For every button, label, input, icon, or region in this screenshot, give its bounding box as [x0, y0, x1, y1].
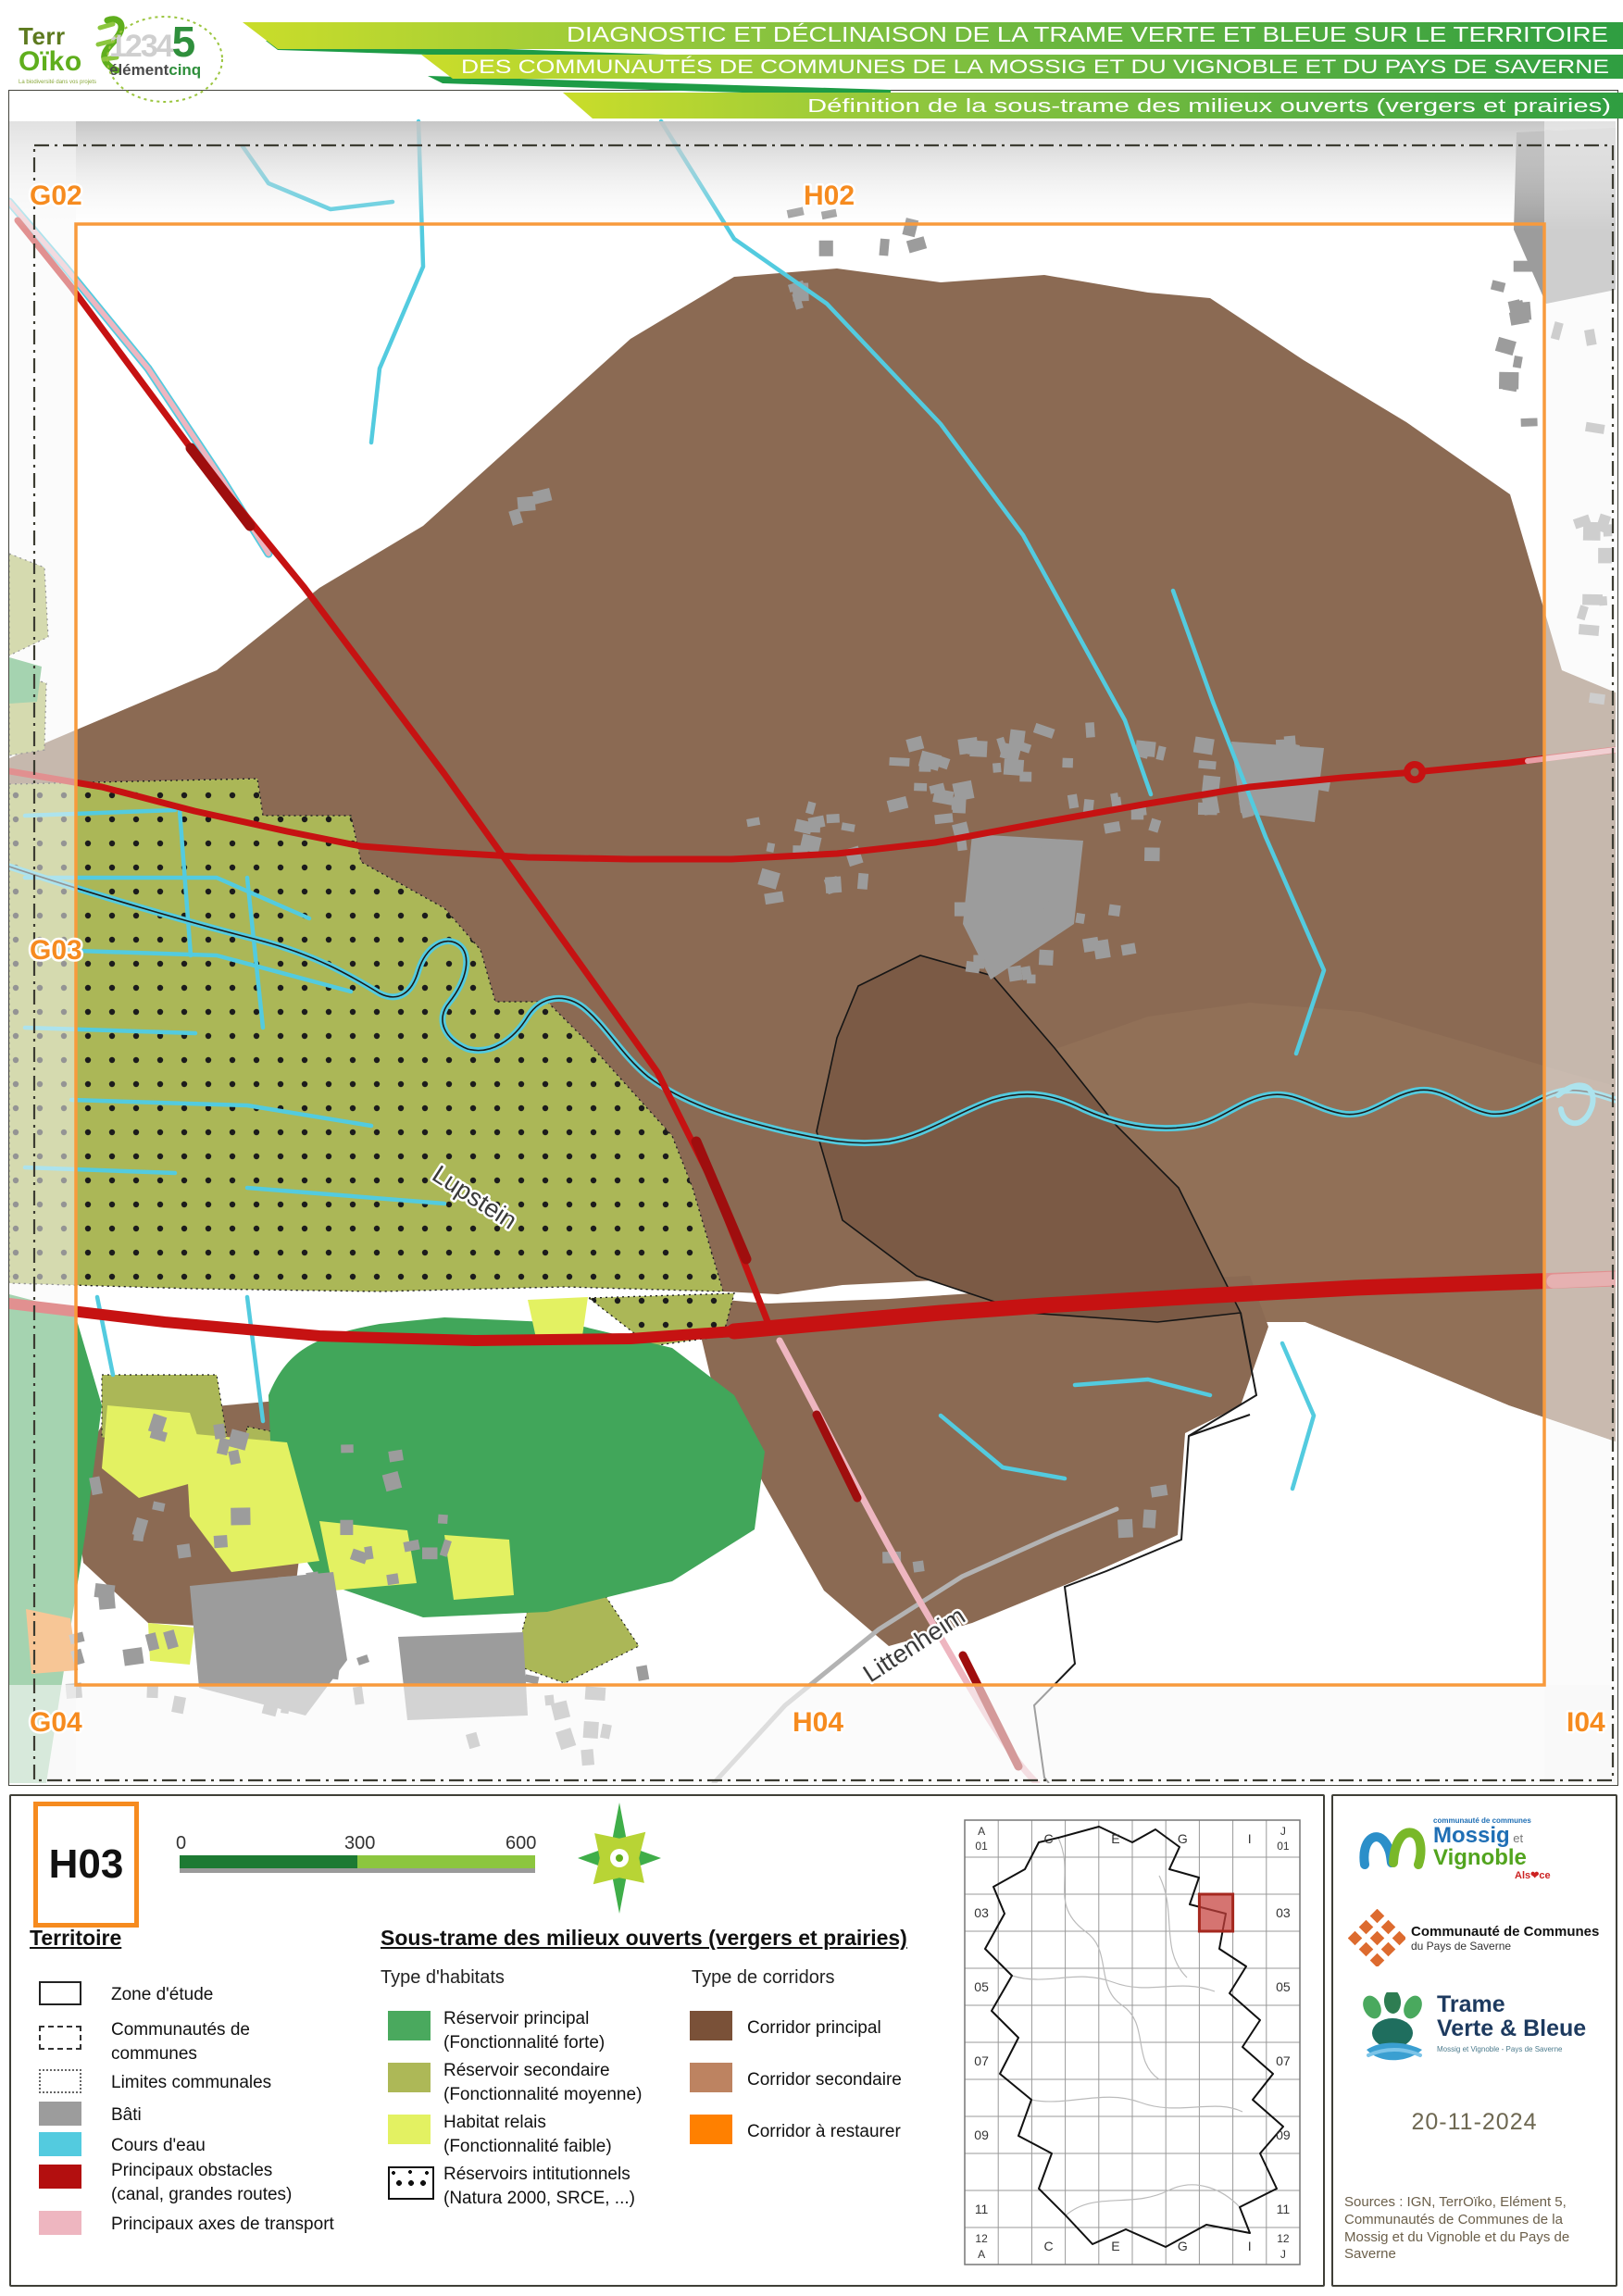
- svg-text:01: 01: [975, 1840, 988, 1853]
- tvb-line1: Trame: [1437, 1992, 1616, 2016]
- legend-panel: H03 0 300 600 m Territoire Zone d'étude …: [9, 1794, 1325, 2287]
- locator-map[interactable]: CCEEGGII03030505070709091111A01J0112A12J: [963, 1818, 1302, 2266]
- svg-text:A: A: [978, 1825, 985, 1838]
- svg-text:09: 09: [974, 2128, 989, 2142]
- saverne-line2: du Pays de Saverne: [1411, 1940, 1616, 1953]
- chip-habitat-relais: [388, 2115, 431, 2144]
- svg-text:07: 07: [1276, 2053, 1291, 2068]
- credits-panel: communauté de communes Mossig et Vignobl…: [1331, 1794, 1617, 2287]
- map-canvas[interactable]: G02 H02 G03 G04 H04 I04 Lupstein Littenh…: [8, 90, 1618, 1786]
- legend-item-communautes: Communautés de: [111, 2018, 250, 2042]
- legend-habitat-ri-2: (Natura 2000, SRCE, ...): [443, 2187, 635, 2211]
- scale-segment-1: [180, 1855, 357, 1868]
- svg-text:E: E: [1111, 1831, 1119, 1846]
- legend-item-obstacles: Principaux obstacles: [111, 2159, 292, 2183]
- swatch-bati: [39, 2102, 81, 2126]
- svg-text:11: 11: [1277, 2202, 1291, 2216]
- header: DIAGNOSTIC ET DÉCLINAISON DE LA TRAME VE…: [0, 0, 1623, 125]
- locator-grid: [965, 1820, 1300, 2265]
- legend-habitat-rs: Réservoir secondaire: [443, 2059, 642, 2083]
- chip-corridor-principal: [690, 2011, 732, 2040]
- habitats-title: Type d'habitats: [381, 1967, 505, 1989]
- compass-rose-icon: [578, 1800, 661, 1916]
- pays-saverne-logo: Communauté de Communes du Pays de Savern…: [1333, 1907, 1616, 1953]
- mossig-name1: Mossig: [1433, 1823, 1510, 1848]
- chip-corridor-restaurer: [690, 2115, 732, 2144]
- map-svg: G02 H02 G03 G04 H04 I04 Lupstein Littenh…: [9, 91, 1616, 1783]
- mossig-name2: Vignoble: [1433, 1845, 1527, 1870]
- grid-label-i04: I04: [1567, 1707, 1605, 1738]
- svg-text:C: C: [1043, 2239, 1053, 2253]
- legend-item-cours-eau: Cours d'eau: [111, 2134, 206, 2158]
- grid-label-h02: H02: [804, 181, 855, 211]
- legend-corridor-restaurer: Corridor à restaurer: [747, 2120, 901, 2144]
- svg-text:11: 11: [975, 2202, 989, 2216]
- swatch-communautes: [39, 2026, 81, 2050]
- tvb-paw-icon: [1357, 1992, 1431, 2070]
- sheet-id-box: H03: [33, 1802, 139, 1928]
- header-title-line2: DES COMMUNAUTÉS DE COMMUNES DE LA MOSSIG…: [461, 55, 1609, 78]
- svg-text:J: J: [1280, 2248, 1286, 2261]
- svg-text:12: 12: [1277, 2232, 1290, 2245]
- saverne-mosaic-icon: [1348, 1909, 1405, 1966]
- territoire-title: Territoire: [30, 1926, 121, 1951]
- corridors-title: Type de corridors: [692, 1967, 835, 1989]
- soustrame-title: Sous-trame des milieux ouverts (vergers …: [381, 1926, 907, 1951]
- svg-text:01: 01: [1277, 1840, 1290, 1853]
- sources-text: Sources : IGN, TerrOïko, Elément 5, Comm…: [1344, 2194, 1607, 2264]
- locator-department-outline: [985, 1827, 1283, 2247]
- legend-item-axes-transport: Principaux axes de transport: [111, 2213, 334, 2237]
- svg-text:12: 12: [975, 2232, 988, 2245]
- mossig-vignoble-logo: communauté de communes Mossig et Vignobl…: [1333, 1816, 1616, 1881]
- legend-corridor-principal: Corridor principal: [747, 2016, 881, 2040]
- svg-text:03: 03: [974, 1905, 989, 1920]
- legend-habitat-rp: Réservoir principal: [443, 2007, 605, 2031]
- header-title-line3: Définition de la sous-trame des milieux …: [807, 95, 1611, 117]
- legend-habitat-ri: Réservoirs intitutionnels: [443, 2163, 635, 2187]
- grid-label-g03: G03: [30, 935, 82, 966]
- locator-current-sheet[interactable]: [1199, 1894, 1232, 1931]
- svg-text:G: G: [1178, 2239, 1188, 2253]
- grid-label-h04: H04: [793, 1707, 843, 1738]
- legend-item-communautes-2: communes: [111, 2042, 250, 2066]
- map-date: 20-11-2024: [1333, 2109, 1616, 2136]
- legend-item-obstacles-2: (canal, grandes routes): [111, 2183, 292, 2207]
- scale-segment-2: [357, 1855, 535, 1868]
- swatch-zone-etude: [39, 1981, 81, 2005]
- legend-habitat-hr-2: (Fonctionnalité faible): [443, 2135, 612, 2159]
- trame-verte-bleue-logo: Trame Verte & Bleue Mossig et Vignoble -…: [1333, 1992, 1616, 2053]
- swatch-limites: [39, 2069, 81, 2093]
- scale-tick-0: 0: [176, 1833, 186, 1854]
- sheet-id: H03: [49, 1841, 124, 1888]
- svg-text:07: 07: [974, 2053, 989, 2068]
- legend-item-bati: Bâti: [111, 2103, 142, 2128]
- svg-text:03: 03: [1276, 1905, 1291, 1920]
- element5-logo: 12345 élémentcinq: [109, 17, 220, 100]
- legend-habitat-hr: Habitat relais: [443, 2111, 612, 2135]
- map-sheet-page: G02 H02 G03 G04 H04 I04 Lupstein Littenh…: [0, 0, 1623, 2296]
- scale-tick-300: 300: [344, 1833, 375, 1854]
- header-title-line1: DIAGNOSTIC ET DÉCLINAISON DE LA TRAME VE…: [567, 22, 1608, 46]
- scale-bar: 0 300 600 m: [180, 1833, 535, 1873]
- legend-item-zone-etude: Zone d'étude: [111, 1983, 213, 2007]
- svg-text:A: A: [978, 2248, 985, 2261]
- svg-text:05: 05: [974, 1979, 989, 1994]
- legend-item-limites: Limites communales: [111, 2071, 271, 2095]
- svg-text:I: I: [1248, 1831, 1252, 1846]
- grid-label-g04: G04: [30, 1707, 82, 1738]
- svg-text:I: I: [1248, 2239, 1252, 2253]
- legend-habitat-rs-2: (Fonctionnalité moyenne): [443, 2083, 642, 2107]
- tvb-line2: Verte & Bleue: [1437, 2016, 1616, 2040]
- element5-arc-icon: [100, 11, 230, 108]
- grid-label-g02: G02: [30, 181, 82, 211]
- swatch-axes-transport: [39, 2211, 81, 2235]
- svg-text:09: 09: [1276, 2128, 1291, 2142]
- chip-corridor-secondaire: [690, 2063, 732, 2092]
- chip-reservoir-principal: [388, 2011, 431, 2040]
- mossig-et: et: [1510, 1831, 1523, 1845]
- legend-corridor-secondaire: Corridor secondaire: [747, 2068, 902, 2092]
- mossig-region: Als❤ce: [1515, 1869, 1616, 1881]
- svg-text:E: E: [1111, 2239, 1119, 2253]
- header-banners-svg: DIAGNOSTIC ET DÉCLINAISON DE LA TRAME VE…: [0, 0, 1623, 125]
- chip-reservoirs-institutionnels: [388, 2166, 434, 2200]
- svg-text:C: C: [1043, 1831, 1053, 1846]
- svg-text:05: 05: [1276, 1979, 1291, 1994]
- saverne-line1: Communauté de Communes: [1411, 1907, 1616, 1940]
- tvb-subtitle: Mossig et Vignoble - Pays de Saverne: [1437, 2045, 1616, 2053]
- svg-text:J: J: [1280, 1825, 1286, 1838]
- mossig-m-icon: [1359, 1822, 1426, 1870]
- legend-habitat-rp-2: (Fonctionnalité forte): [443, 2031, 605, 2055]
- chip-reservoir-secondaire: [388, 2063, 431, 2092]
- svg-text:G: G: [1178, 1831, 1188, 1846]
- swatch-obstacles: [39, 2165, 81, 2189]
- swatch-cours-eau: [39, 2132, 81, 2156]
